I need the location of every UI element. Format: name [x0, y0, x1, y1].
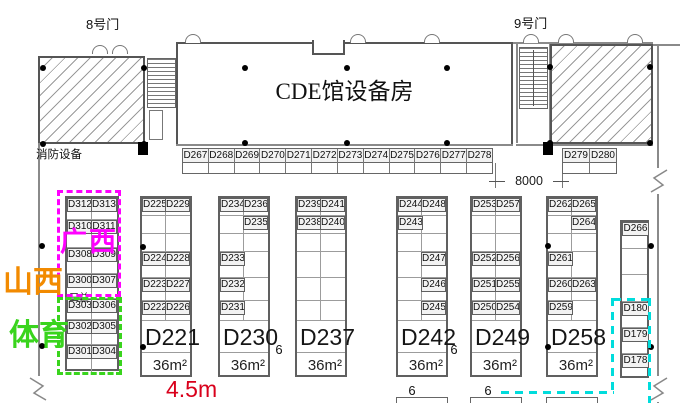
door-arc [627, 34, 643, 43]
wall-break-icon [649, 376, 671, 402]
booth-big-label: D237 [297, 321, 345, 353]
booth-strip-gate9: D279D280 [562, 148, 617, 174]
booth-label: D232 [220, 278, 245, 292]
booth-label: D260 [548, 278, 573, 292]
aisle-width-label: 6 [271, 342, 287, 357]
booth-gridline [297, 300, 345, 301]
booth-label: D280 [590, 149, 616, 163]
column-dot [344, 65, 350, 71]
booth-gridline [622, 248, 647, 249]
booth-label: D271 [286, 149, 311, 163]
column-dot [648, 243, 654, 249]
stairs-left [147, 58, 176, 108]
booth-label: D279 [563, 149, 589, 163]
booth-label: D178 [622, 354, 649, 368]
booth-label: D227 [165, 278, 190, 292]
booth-label: D257 [495, 198, 520, 212]
door-arc [185, 34, 201, 43]
booth-cell: D279 [563, 149, 590, 173]
column-dot [40, 65, 46, 71]
booth-label: D246 [421, 278, 446, 292]
block-d258: D262D265D264D261D260D263D259D25836m² [546, 196, 598, 377]
booth-label: D225 [142, 198, 167, 212]
booth-label: D245 [421, 301, 446, 315]
cyan-highlight-tail [501, 391, 614, 394]
column-dot [545, 243, 551, 249]
booth-cell: D270 [260, 149, 286, 173]
wall-right [657, 44, 659, 403]
cyan-highlight-top [613, 298, 650, 301]
booth-label: D272 [312, 149, 337, 163]
booth-gridline [297, 251, 345, 252]
booth-label: D276 [415, 149, 440, 163]
booth-big-label: D258 [548, 321, 596, 353]
exhibition-floor-plan: 8号门 9号门 消防设备 CDE馆设备房 8000 广西 山西 体育 4.5m … [0, 0, 680, 403]
booth-label: D222 [142, 301, 167, 315]
booth-cell: D274 [364, 149, 390, 173]
block-d221: D225D229D224D228D223D227D222D226D22136m² [140, 196, 192, 377]
column-dot [444, 140, 450, 146]
booth-label: D233 [220, 252, 245, 266]
booth-label: D228 [165, 252, 190, 266]
booth-cell: D269 [235, 149, 261, 173]
booth-cell: D268 [209, 149, 235, 173]
booth-label: D235 [243, 216, 268, 230]
booth-label: D262 [548, 198, 573, 212]
column-dot [39, 243, 45, 249]
door-arc [558, 34, 574, 43]
booth-label: D275 [390, 149, 415, 163]
column-dot [547, 64, 553, 70]
column-dot [444, 65, 450, 71]
booth-big-label: D221 [142, 321, 190, 353]
sports-label: 体育 [9, 321, 69, 351]
wall-building-bottom-right [516, 144, 653, 146]
gate9-label: 9号门 [514, 13, 547, 32]
booth-label: D239 [297, 198, 322, 212]
booth-label: D273 [338, 149, 363, 163]
booth-label: D266 [622, 222, 649, 236]
wall-break-icon [26, 376, 48, 402]
booth-label: D248 [421, 198, 446, 212]
booth-area-label: 36m² [398, 357, 446, 379]
depth-dimension-label: 4.5m [166, 378, 217, 401]
booth-label: D223 [142, 278, 167, 292]
column-dot [140, 344, 146, 350]
column-dot [141, 65, 147, 71]
wall-break-icon [649, 168, 671, 194]
closet-left [149, 110, 163, 140]
booth-strip-top: D267D268D269D270D271D272D273D274D275D276… [182, 148, 493, 174]
booth-gridline [472, 233, 520, 234]
booth-gridline [142, 215, 190, 216]
booth-big-label: D242 [398, 321, 446, 353]
booth-cell: D276 [415, 149, 441, 173]
booth-gridline [472, 215, 520, 216]
booth-gridline [220, 233, 268, 234]
booth-label: D238 [297, 216, 322, 230]
booth-label: D252 [472, 252, 497, 266]
hatched-room-right [550, 44, 653, 144]
dimension-8000-label: 8000 [505, 174, 553, 188]
booth-label: D274 [364, 149, 389, 163]
booth-label: D270 [260, 149, 285, 163]
door-arc [424, 34, 440, 43]
cyan-highlight-right [648, 298, 651, 403]
booth-area-label: 36m² [472, 357, 520, 379]
booth-cell: D267 [183, 149, 209, 173]
gate8-label: 8号门 [86, 14, 119, 33]
booth-label: D180 [622, 302, 649, 316]
booth-label: D229 [165, 198, 190, 212]
block-d242: D244D248D243D247D246D245D24236m² [396, 196, 448, 377]
booth-label: D250 [472, 301, 497, 315]
booth-cell: D271 [286, 149, 312, 173]
booth-label: D240 [320, 216, 345, 230]
column-dot [647, 140, 653, 146]
booth-label: D234 [220, 198, 245, 212]
booth-label: D265 [571, 198, 596, 212]
booth-label: D256 [495, 252, 520, 266]
booth-area-label: 36m² [297, 357, 345, 379]
aisle-width-label: 6 [446, 342, 462, 357]
booth-cell: D275 [390, 149, 416, 173]
equipment-room-title: CDE馆设备房 [176, 72, 513, 106]
door-arc [112, 45, 128, 54]
block-d237: D239D241D238D240D23736m² [295, 196, 347, 377]
door-arc [92, 45, 108, 54]
booth-big-label: D230 [220, 321, 268, 353]
booth-cell: D277 [441, 149, 467, 173]
block-d249: D253D257D252D256D251D255D250D254D24936m² [470, 196, 522, 377]
door-arc [350, 34, 366, 43]
booth-label: D277 [441, 149, 466, 163]
booth-label: D247 [421, 252, 446, 266]
shanxi-label: 山西 [3, 268, 63, 298]
booth-gridline [548, 233, 596, 234]
section-marker [138, 142, 148, 155]
booth-gridline [142, 233, 190, 234]
cyan-highlight-left [611, 298, 614, 393]
section-marker [543, 142, 553, 155]
booth-gridline [297, 233, 345, 234]
booth-label: D254 [495, 301, 520, 315]
fire-equipment-label: 消防设备 [36, 146, 82, 162]
column-dot [344, 140, 350, 146]
aisle-width-label: 6 [404, 383, 420, 398]
block-d230: D234D236D235D233D232D231D23036m² [218, 196, 270, 377]
booth-area-label: 36m² [220, 357, 268, 379]
booth-label: D278 [467, 149, 492, 163]
column-dot [242, 65, 248, 71]
booth-label: D253 [472, 198, 497, 212]
booth-partial-row [546, 397, 598, 403]
booth-cell: D273 [338, 149, 364, 173]
booth-gridline [398, 233, 446, 234]
column-dot [140, 244, 146, 250]
booth-label: D179 [622, 328, 649, 342]
aisle-width-label: 6 [480, 383, 496, 398]
booth-cell: D278 [467, 149, 492, 173]
column-dot [545, 344, 551, 350]
door-arc [523, 34, 539, 43]
booth-area-label: 36m² [548, 357, 596, 379]
building-notch [312, 40, 345, 55]
hatched-room-left [38, 56, 145, 144]
wall-top-edge-right [653, 44, 680, 46]
column-dot [647, 64, 653, 70]
booth-label: D231 [220, 301, 245, 315]
wall-corridor-right-a [516, 42, 518, 143]
column-dot [242, 140, 248, 146]
dimension-extension-left [495, 163, 496, 188]
booth-label: D269 [235, 149, 260, 163]
guangxi-label: 广西 [60, 229, 118, 256]
booth-label: D259 [548, 301, 573, 315]
booth-label: D241 [320, 198, 345, 212]
booth-big-label: D249 [472, 321, 520, 353]
booth-partial-row [470, 397, 522, 403]
booth-cell: D280 [590, 149, 616, 173]
booth-gridline [297, 277, 345, 278]
booth-label: D268 [209, 149, 234, 163]
booth-cell: D272 [312, 149, 338, 173]
booth-label: D244 [398, 198, 423, 212]
booth-label: D255 [495, 278, 520, 292]
booth-label: D226 [165, 301, 190, 315]
booth-label: D261 [548, 252, 573, 266]
booth-label: D224 [142, 252, 167, 266]
booth-label: D236 [243, 198, 268, 212]
booth-label: D264 [571, 216, 596, 230]
booth-label: D251 [472, 278, 497, 292]
stairs-right-divider [533, 50, 534, 106]
booth-label: D263 [571, 278, 596, 292]
booth-label: D267 [183, 149, 208, 163]
booth-gridline [622, 274, 647, 275]
booth-label: D243 [398, 216, 423, 230]
